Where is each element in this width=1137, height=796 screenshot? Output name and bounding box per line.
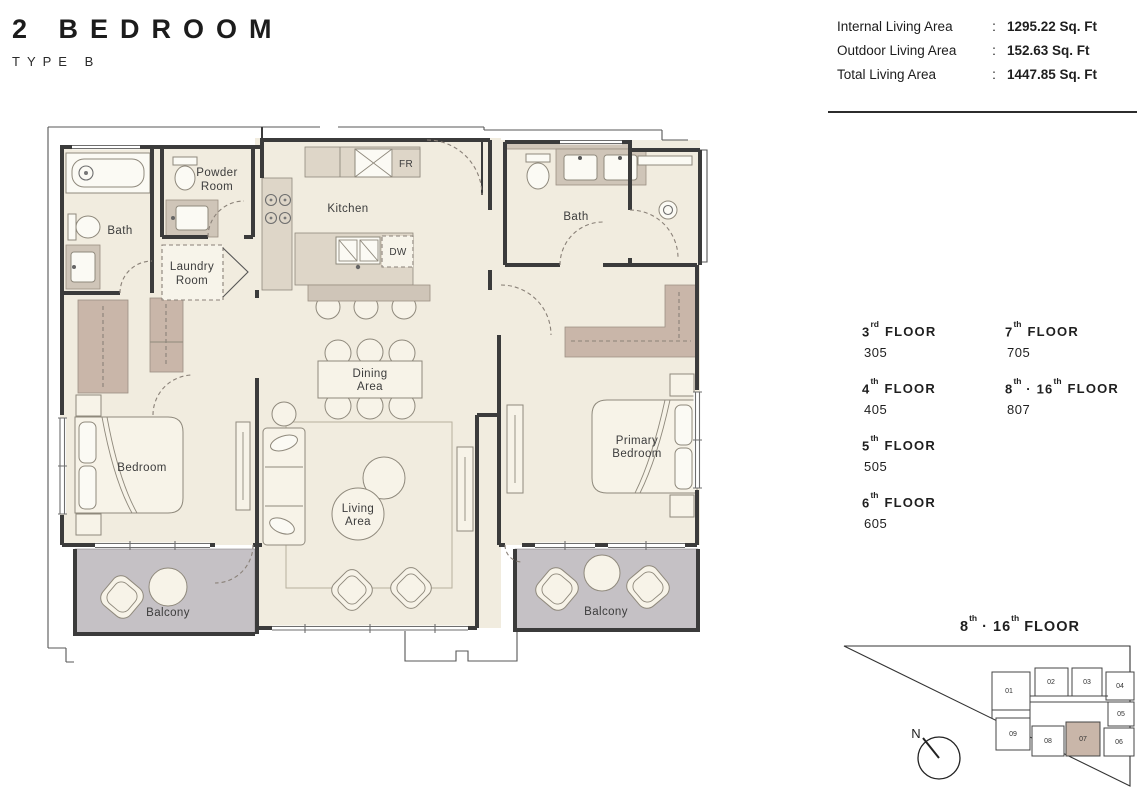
bedroom-label: Bedroom <box>117 462 166 474</box>
keyplan-unit-label: 07 <box>1079 736 1087 743</box>
floor-word: FLOOR <box>884 438 936 453</box>
kitchen-label: Kitchen <box>327 203 368 215</box>
living-label-1: Living <box>342 503 374 515</box>
unit-number: 705 <box>1005 345 1137 360</box>
toilet-tank <box>526 154 550 162</box>
keyplan-unit-label: 01 <box>1005 688 1013 695</box>
floor-item-7: 7thFLOOR 705 <box>1005 323 1137 357</box>
powder-room-label-1: Powder <box>196 167 237 179</box>
keyplan: 01 02 03 04 05 06 07 08 09 N <box>840 600 1137 796</box>
unit-number: 405 <box>862 402 1002 417</box>
living-label-2: Area <box>345 516 371 528</box>
compass: N <box>911 726 960 779</box>
balcony-table <box>584 555 620 591</box>
floor-ordinal: th <box>870 376 878 386</box>
kitchen-sink-icon <box>336 237 380 264</box>
area-summary: Internal Living Area : 1295.22 Sq. Ft Ou… <box>837 19 1137 91</box>
floor-ordinal-2: th <box>1054 376 1062 386</box>
floor-plan: FR DW Kitchen Bath Powder Room <box>40 110 740 690</box>
keyplan-unit-label: 04 <box>1116 683 1124 690</box>
fridge-label: FR <box>399 159 413 170</box>
dining-label-1: Dining <box>352 368 387 380</box>
area-value: 1295.22 Sq. Ft <box>1007 19 1097 34</box>
floor-ordinal: rd <box>870 319 879 329</box>
toilet-icon <box>76 216 100 238</box>
floor-word: FLOOR <box>884 495 936 510</box>
floor-item-6: 6thFLOOR 605 <box>862 494 1002 528</box>
title-block: 2 BEDROOM TYPE B <box>12 14 284 69</box>
floor-ordinal: th <box>1013 376 1021 386</box>
unit-number: 505 <box>862 459 1002 474</box>
area-label: Internal Living Area <box>837 19 987 34</box>
area-row-internal: Internal Living Area : 1295.22 Sq. Ft <box>837 19 1137 34</box>
pillow <box>675 448 692 489</box>
site-boundary <box>844 646 1130 786</box>
primary-bedroom-label-2: Bedroom <box>612 448 661 460</box>
floor-ordinal: th <box>870 490 878 500</box>
area-row-total: Total Living Area : 1447.85 Sq. Ft <box>837 67 1137 82</box>
area-value: 152.63 Sq. Ft <box>1007 43 1090 58</box>
keyplan-unit-label: 09 <box>1009 731 1017 738</box>
dining-area: Dining Area <box>318 339 422 419</box>
keyplan-unit-label: 03 <box>1083 679 1091 686</box>
floor-item-5: 5thFLOOR 505 <box>862 437 1002 471</box>
unit-number: 605 <box>862 516 1002 531</box>
balcony-left-label: Balcony <box>146 607 190 619</box>
nightstand <box>76 395 101 416</box>
floor-item-8-16: 8th · 16thFLOOR 807 <box>1005 380 1137 414</box>
dining-label-2: Area <box>357 381 383 393</box>
building-footprint: 01 02 03 04 05 06 07 08 09 <box>992 668 1134 756</box>
dishwasher-label: DW <box>389 247 407 258</box>
floor-list-left: 3rdFLOOR 305 4thFLOOR 405 5thFLOOR 505 6… <box>862 323 1002 551</box>
area-label: Outdoor Living Area <box>837 43 987 58</box>
compass-needle <box>923 738 939 758</box>
nightstand <box>76 514 101 535</box>
area-value: 1447.85 Sq. Ft <box>1007 67 1097 82</box>
area-colon: : <box>987 67 1001 82</box>
keyplan-unit-label: 06 <box>1115 739 1123 746</box>
floor-word: FLOOR <box>885 324 937 339</box>
page-title: 2 BEDROOM <box>12 14 284 45</box>
bath-right-label: Bath <box>563 211 588 223</box>
floor-ordinal: th <box>870 433 878 443</box>
shower-shelf <box>638 156 692 165</box>
toilet-icon <box>527 163 549 189</box>
pillow <box>79 466 96 509</box>
nightstand <box>670 374 694 396</box>
toilet-tank <box>173 157 197 165</box>
primary-bedroom-label-1: Primary <box>616 435 658 447</box>
keyplan-unit-label: 05 <box>1117 711 1125 718</box>
nightstand <box>670 495 694 517</box>
toilet-tank <box>68 214 76 240</box>
balcony-right-label: Balcony <box>584 606 628 618</box>
unit-number: 807 <box>1005 402 1137 417</box>
side-table <box>272 402 296 426</box>
area-colon: : <box>987 19 1001 34</box>
pillow <box>79 422 96 463</box>
floor-item-3: 3rdFLOOR 305 <box>862 323 1002 357</box>
island-overhang <box>308 285 430 301</box>
area-colon: : <box>987 43 1001 58</box>
keyplan-unit-label: 08 <box>1044 738 1052 745</box>
balcony-table <box>149 568 187 606</box>
compass-north-label: N <box>911 726 920 741</box>
floor-word: FLOOR <box>884 381 936 396</box>
laundry-label-1: Laundry <box>170 261 214 273</box>
floor-ordinal: th <box>1013 319 1021 329</box>
shower-drain-icon <box>659 201 677 219</box>
floor-word: FLOOR <box>1027 324 1079 339</box>
header-divider <box>828 111 1137 113</box>
pillow <box>675 405 692 445</box>
page-subtitle: TYPE B <box>12 54 284 69</box>
floor-separator: · <box>1021 381 1036 396</box>
floorplan-page: { "title": {"name": "2 BEDROOM", "type":… <box>0 0 1137 796</box>
bath-left-label: Bath <box>107 225 132 237</box>
powder-room-label-2: Room <box>201 181 233 193</box>
floor-word: FLOOR <box>1068 381 1120 396</box>
unit-number: 305 <box>862 345 1002 360</box>
floor-list-right: 7thFLOOR 705 8th · 16thFLOOR 807 <box>1005 323 1137 437</box>
area-row-outdoor: Outdoor Living Area : 152.63 Sq. Ft <box>837 43 1137 58</box>
area-label: Total Living Area <box>837 67 987 82</box>
sink-icon <box>176 206 208 230</box>
floor-item-4: 4thFLOOR 405 <box>862 380 1002 414</box>
laundry-label-2: Room <box>176 275 208 287</box>
keyplan-unit-label: 02 <box>1047 679 1055 686</box>
floor-number-2: 16 <box>1037 381 1054 396</box>
toilet-icon <box>175 166 195 190</box>
